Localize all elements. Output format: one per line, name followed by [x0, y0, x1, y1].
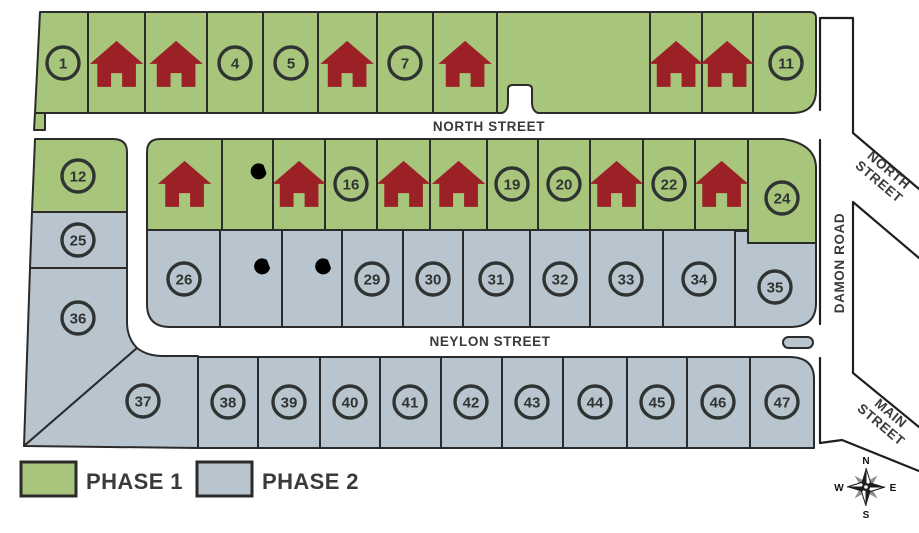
svg-text:4: 4: [231, 56, 240, 73]
svg-text:30: 30: [425, 272, 442, 289]
street-label-neylon: NEYLON STREET: [429, 334, 550, 349]
compass-north-label: N: [862, 456, 869, 467]
svg-text:44: 44: [587, 395, 604, 412]
svg-text:20: 20: [556, 177, 573, 194]
svg-text:37: 37: [135, 394, 152, 411]
lot-tools: [282, 230, 342, 327]
legend-swatch-phase2: [197, 462, 252, 496]
svg-text:24: 24: [774, 191, 791, 208]
svg-text:42: 42: [463, 395, 480, 412]
legend-swatch-phase1: [21, 462, 76, 496]
svg-text:47: 47: [774, 395, 791, 412]
svg-text:40: 40: [342, 395, 359, 412]
svg-text:36: 36: [70, 311, 87, 328]
site-plan-canvas: 1 4 5 7 11 12 25 36 16 19 20 22 24 26 29…: [0, 0, 919, 533]
svg-text:31: 31: [488, 272, 505, 289]
legend-label-phase2: PHASE 2: [262, 469, 359, 494]
svg-text:11: 11: [778, 56, 794, 73]
svg-text:26: 26: [176, 272, 193, 289]
svg-text:19: 19: [504, 177, 521, 194]
compass-south-label: S: [863, 510, 870, 521]
svg-text:43: 43: [524, 395, 541, 412]
svg-text:32: 32: [552, 272, 569, 289]
site-map: 1 4 5 7 11 12 25 36 16 19 20 22 24 26 29…: [0, 0, 919, 533]
svg-text:NORTHSTREET: NORTHSTREET: [853, 146, 916, 206]
legend-label-phase1: PHASE 1: [86, 469, 183, 494]
svg-text:16: 16: [343, 177, 360, 194]
lot-tools: [220, 230, 282, 327]
street-label-damon: DAMON ROAD: [832, 213, 847, 314]
svg-text:12: 12: [70, 169, 87, 186]
lot-tools: [222, 139, 273, 230]
svg-text:35: 35: [767, 280, 784, 297]
small-parcel-sliver: [34, 113, 45, 130]
svg-text:45: 45: [649, 395, 666, 412]
svg-text:5: 5: [287, 56, 295, 73]
street-label-main-branch: MAINSTREET: [855, 389, 918, 449]
street-label-north: NORTH STREET: [433, 119, 545, 134]
svg-text:1: 1: [59, 56, 67, 73]
compass-rose: N E S W: [834, 456, 896, 521]
traffic-island: [783, 337, 813, 348]
svg-text:MAINSTREET: MAINSTREET: [855, 389, 918, 449]
svg-text:7: 7: [401, 56, 409, 73]
street-label-north-branch: NORTHSTREET: [853, 146, 916, 206]
svg-text:33: 33: [618, 272, 635, 289]
legend: PHASE 1 PHASE 2: [21, 462, 359, 496]
svg-text:25: 25: [70, 233, 87, 250]
svg-text:22: 22: [661, 177, 678, 194]
svg-text:46: 46: [710, 395, 727, 412]
svg-text:29: 29: [364, 272, 381, 289]
compass-east-label: E: [890, 483, 897, 494]
svg-text:38: 38: [220, 395, 237, 412]
open-parcel: [497, 12, 650, 113]
svg-text:39: 39: [281, 395, 298, 412]
svg-text:41: 41: [402, 395, 419, 412]
compass-west-label: W: [834, 483, 844, 494]
svg-text:34: 34: [691, 272, 708, 289]
